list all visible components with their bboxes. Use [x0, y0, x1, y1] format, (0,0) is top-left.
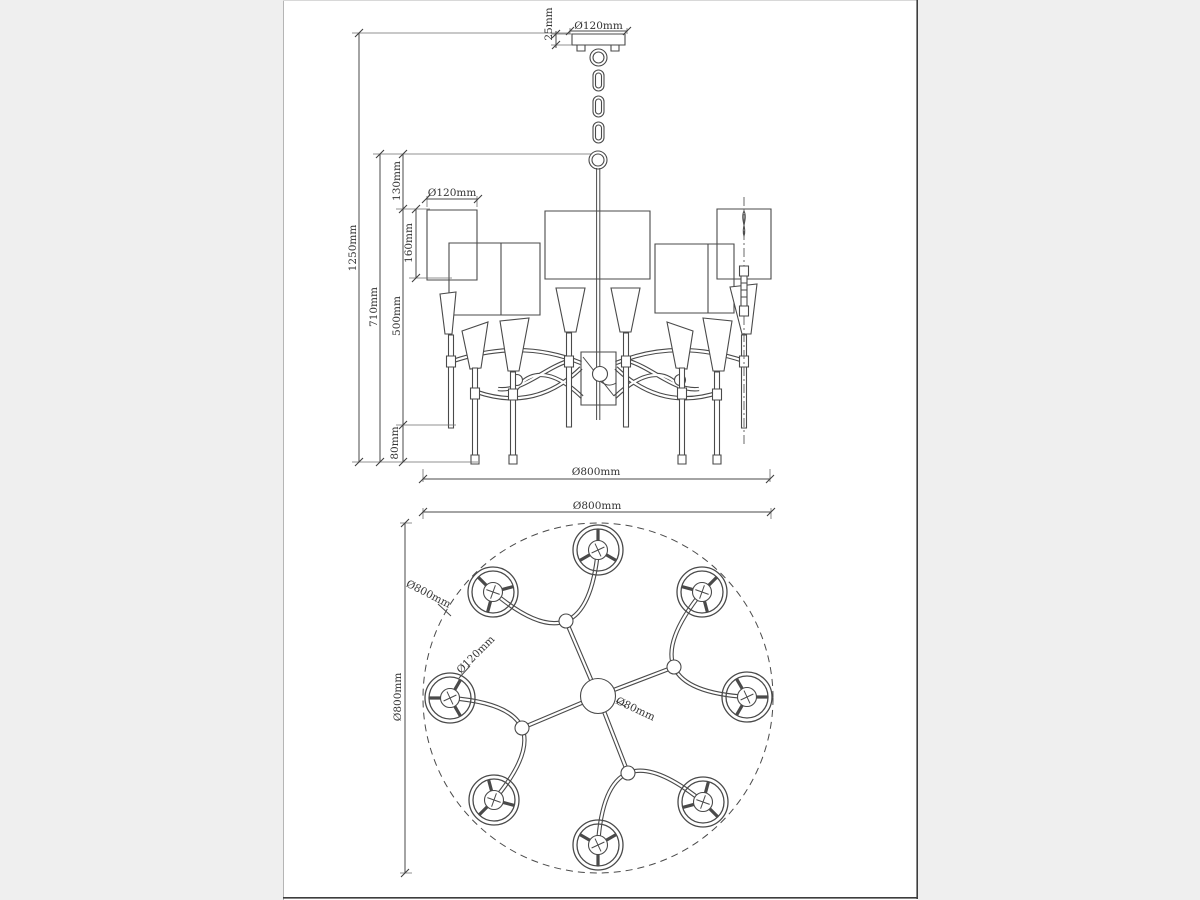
dim-label-plan-height: Ø800mm — [392, 673, 404, 722]
dim-label-canopy-height: 25mm — [543, 7, 555, 40]
page-background — [0, 0, 1200, 900]
dim-label-shade-diameter: Ø120mm — [428, 187, 477, 199]
dim-label-chain-drop: 130mm — [391, 161, 403, 201]
drawing-sheet: Ø120mm 25mm 1250mm 710mm 130mm 160mm 500… — [0, 0, 1200, 900]
dim-label-fixture-diameter: Ø800mm — [572, 466, 621, 478]
dim-label-canopy-diameter: Ø120mm — [574, 20, 623, 32]
dim-label-overall-height: 1250mm — [347, 225, 359, 272]
lamp-socket — [740, 266, 749, 316]
canopy-plate — [572, 34, 625, 45]
dim-label-plan-width: Ø800mm — [573, 500, 622, 512]
dim-label-finial-length: 80mm — [389, 426, 401, 459]
page — [283, 0, 918, 900]
arm-joint — [515, 721, 529, 735]
arm-joint — [621, 766, 635, 780]
dim-label-body-height: 710mm — [368, 287, 380, 327]
technical-drawing: Ø120mm 25mm 1250mm 710mm 130mm 160mm 500… — [0, 0, 1200, 900]
arm-joint — [667, 660, 681, 674]
arm-joint — [559, 614, 573, 628]
dim-label-shade-height: 160mm — [403, 223, 415, 263]
hub-circle — [581, 679, 616, 714]
hub-knot — [593, 367, 608, 382]
dim-label-body-section: 500mm — [391, 296, 403, 336]
